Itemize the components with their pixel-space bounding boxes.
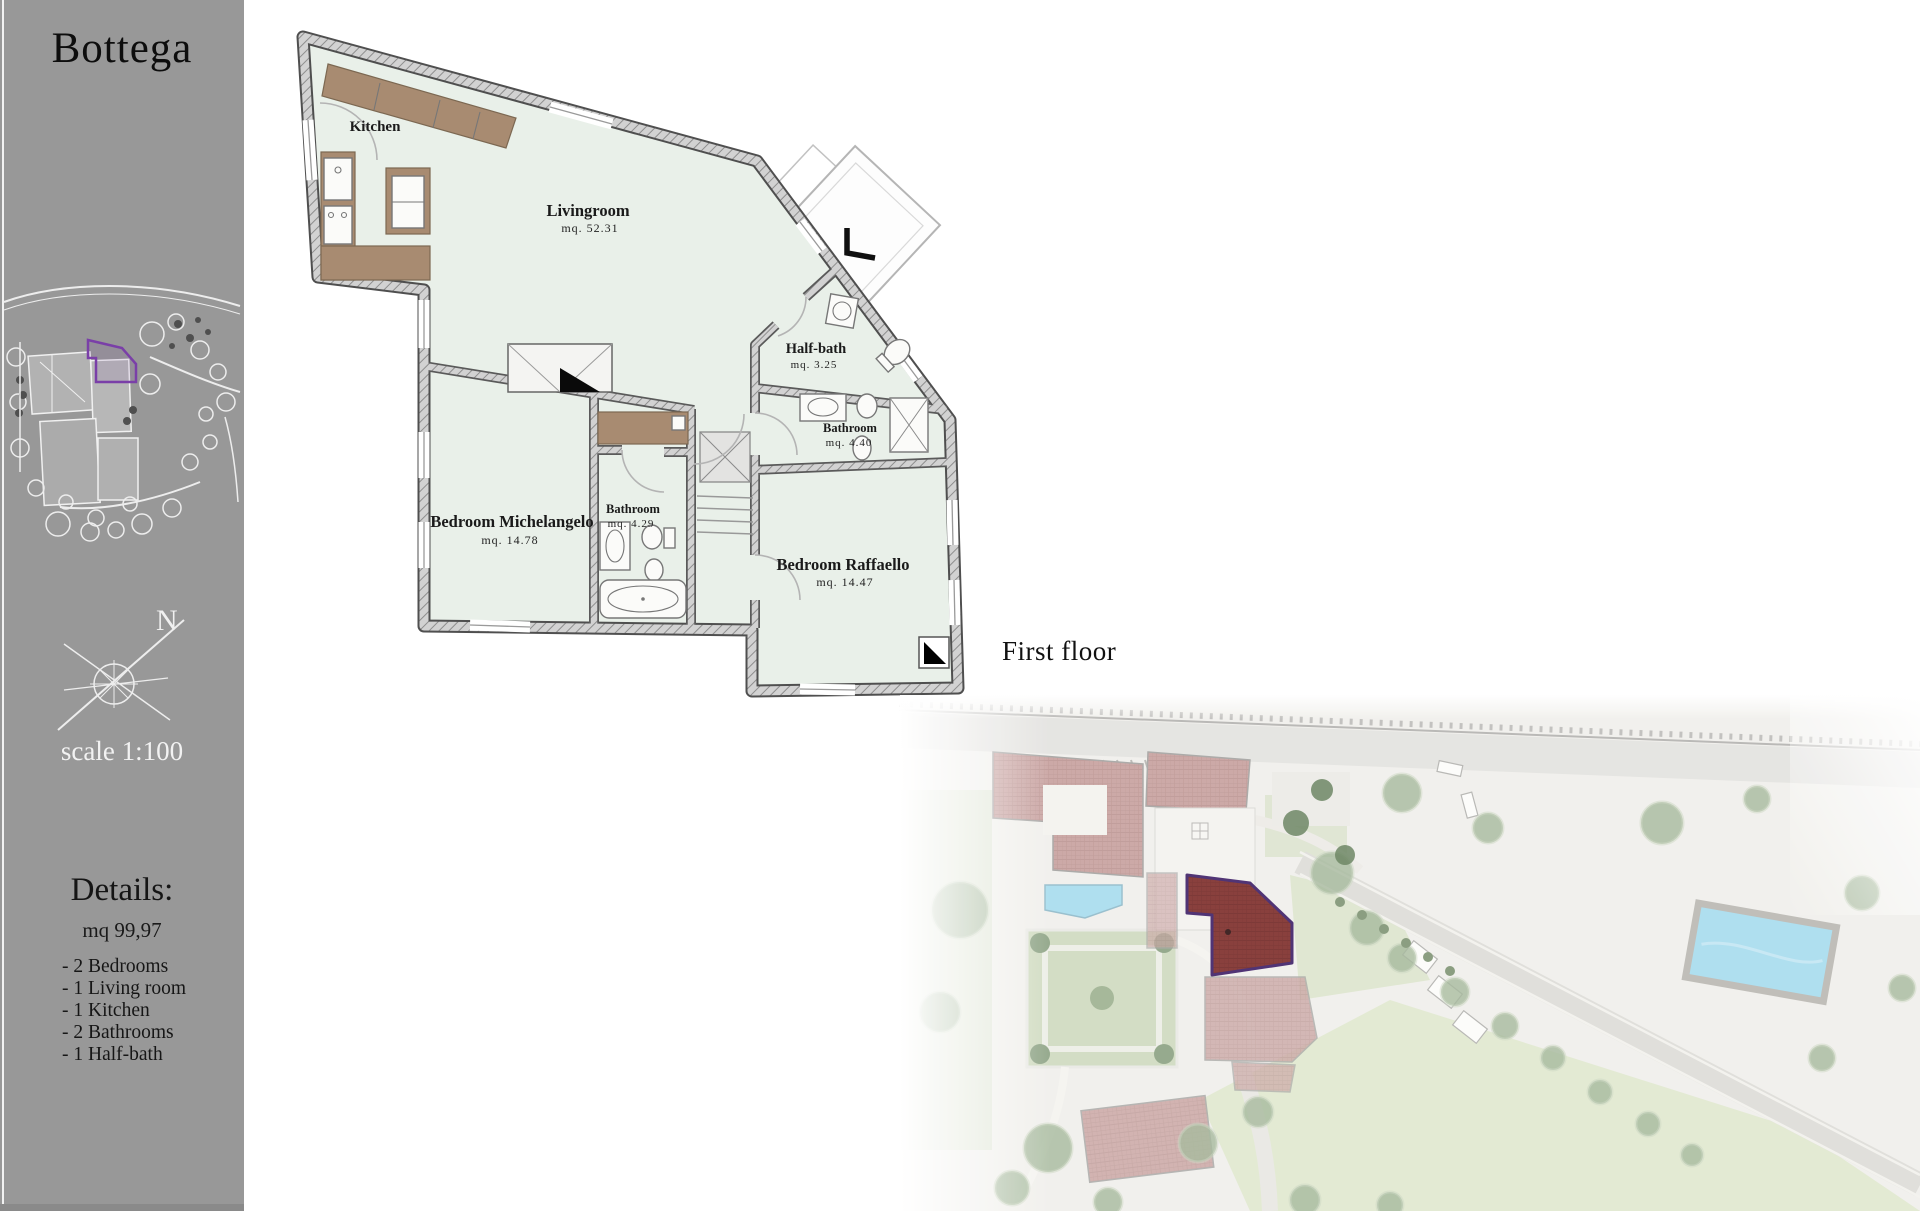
room-area-bedroom-raffaello: mq. 14.47 <box>816 575 873 589</box>
room-label-kitchen: Kitchen <box>350 119 401 135</box>
room-area-livingroom: mq. 52.31 <box>561 221 618 235</box>
room-label-bedroom-michelangelo: Bedroom Michelangelo <box>430 512 593 531</box>
room-label-livingroom: Livingroom <box>546 201 629 220</box>
page: Bottega <box>0 0 1920 1211</box>
room-area-bedroom-michelangelo: mq. 14.78 <box>481 533 538 547</box>
wardrobe <box>598 412 688 444</box>
fireplace <box>508 344 612 392</box>
room-area-bathroom-429: mq. 4.29 <box>608 518 655 530</box>
room-label-halfbath: Half-bath <box>786 341 846 357</box>
room-area-bathroom-440: mq. 4.40 <box>826 437 873 449</box>
floor-plan-drawing: Kitchen Livingroom mq. 52.31 Half-bath m… <box>303 37 958 691</box>
drawing-canvas: Kitchen Livingroom mq. 52.31 Half-bath m… <box>0 0 1920 1211</box>
room-label-bathroom-429: Bathroom <box>606 502 661 516</box>
room-area-halfbath: mq. 3.25 <box>791 359 838 371</box>
room-label-bedroom-raffaello: Bedroom Raffaello <box>776 555 909 574</box>
room-label-bathroom-440: Bathroom <box>823 421 878 435</box>
site-plan-aerial <box>900 695 1920 1211</box>
corner-marker <box>919 637 949 668</box>
floor-label: First floor <box>1002 636 1116 667</box>
